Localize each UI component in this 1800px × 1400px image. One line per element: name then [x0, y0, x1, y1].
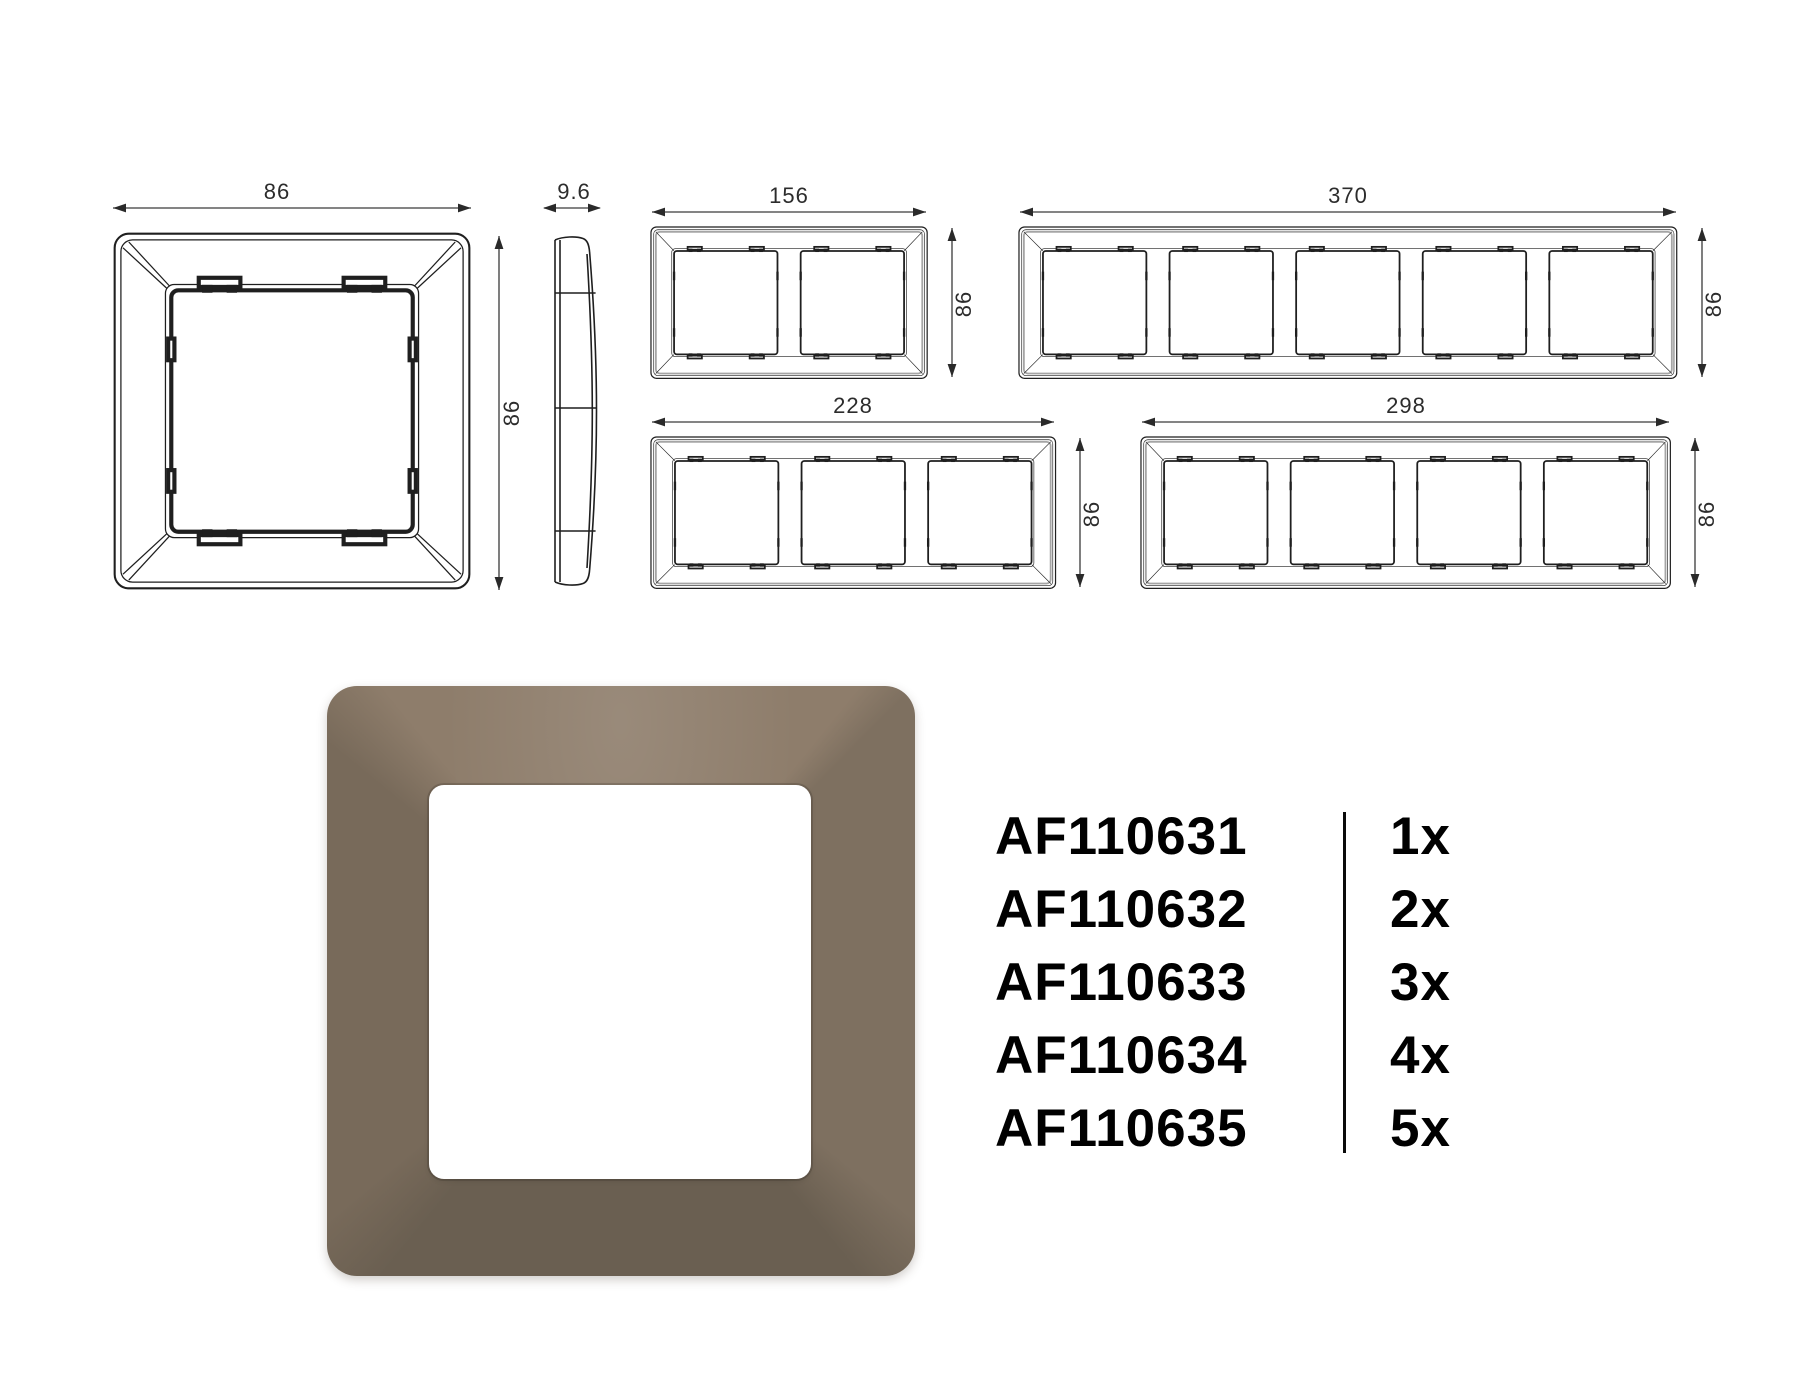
dim-height-2gang: 86	[948, 228, 976, 377]
product-code: AF110635	[995, 1092, 1343, 1165]
product-qty: 2x	[1390, 873, 1451, 946]
drawing-1gang-front: 86 86	[95, 178, 555, 608]
dim-width-1gang: 86	[113, 179, 471, 212]
frame-2gang-lineart	[651, 227, 927, 378]
dim-width-4gang: 298	[1142, 393, 1669, 426]
drawing-2gang-front: 156 86	[650, 182, 980, 392]
drawing-3gang-front: 228 86	[650, 392, 1120, 602]
dim-label-height-4gang: 86	[1694, 501, 1719, 527]
product-code: AF110631	[995, 800, 1343, 873]
product-qty: 5x	[1390, 1092, 1451, 1165]
frame-4gang-lineart	[1141, 437, 1670, 588]
spec-sheet: 86 86 9.6	[0, 0, 1800, 1400]
dim-label-height-5gang: 86	[1701, 291, 1726, 317]
frame-opening	[429, 785, 811, 1179]
product-qty: 4x	[1390, 1019, 1451, 1092]
dim-label-height-3gang: 86	[1079, 501, 1104, 527]
dim-width-2gang: 156	[652, 183, 926, 216]
dim-label-width-5gang: 370	[1328, 183, 1368, 208]
dim-height-4gang: 86	[1691, 438, 1719, 587]
dim-label-width-2gang: 156	[769, 183, 809, 208]
dim-height-3gang: 86	[1076, 438, 1104, 587]
frame-3gang-lineart	[651, 437, 1056, 588]
dim-width-5gang: 370	[1020, 183, 1676, 216]
dim-label-height-1gang: 86	[499, 400, 524, 426]
product-code: AF110634	[995, 1019, 1343, 1092]
dim-label-width-4gang: 298	[1386, 393, 1426, 418]
dim-depth-profile: 9.6	[543, 179, 601, 212]
product-qty: 3x	[1390, 946, 1451, 1019]
product-code: AF110633	[995, 946, 1343, 1019]
frame-5gang-lineart	[1019, 227, 1677, 378]
dim-label-height-2gang: 86	[951, 291, 976, 317]
drawing-4gang-front: 298 86	[1140, 392, 1740, 602]
dim-label-depth-profile: 9.6	[557, 179, 591, 204]
drawing-5gang-front: 370 86	[1018, 182, 1748, 392]
product-code-column: AF110631 AF110632 AF110633 AF110634 AF11…	[995, 800, 1343, 1165]
frame-1gang-lineart	[115, 234, 470, 589]
dim-label-width-1gang: 86	[264, 179, 290, 204]
product-table: AF110631 AF110632 AF110633 AF110634 AF11…	[995, 800, 1451, 1165]
dim-height-1gang: 86	[495, 236, 524, 590]
dim-label-width-3gang: 228	[833, 393, 873, 418]
product-code: AF110632	[995, 873, 1343, 946]
drawing-profile-side: 9.6	[540, 178, 620, 608]
product-qty: 1x	[1390, 800, 1451, 873]
profile-lineart	[555, 237, 597, 585]
product-qty-column: 1x 2x 3x 4x 5x	[1346, 800, 1451, 1165]
dim-width-3gang: 228	[652, 393, 1054, 426]
cover-frame-render	[327, 686, 915, 1276]
dim-height-5gang: 86	[1698, 228, 1726, 377]
